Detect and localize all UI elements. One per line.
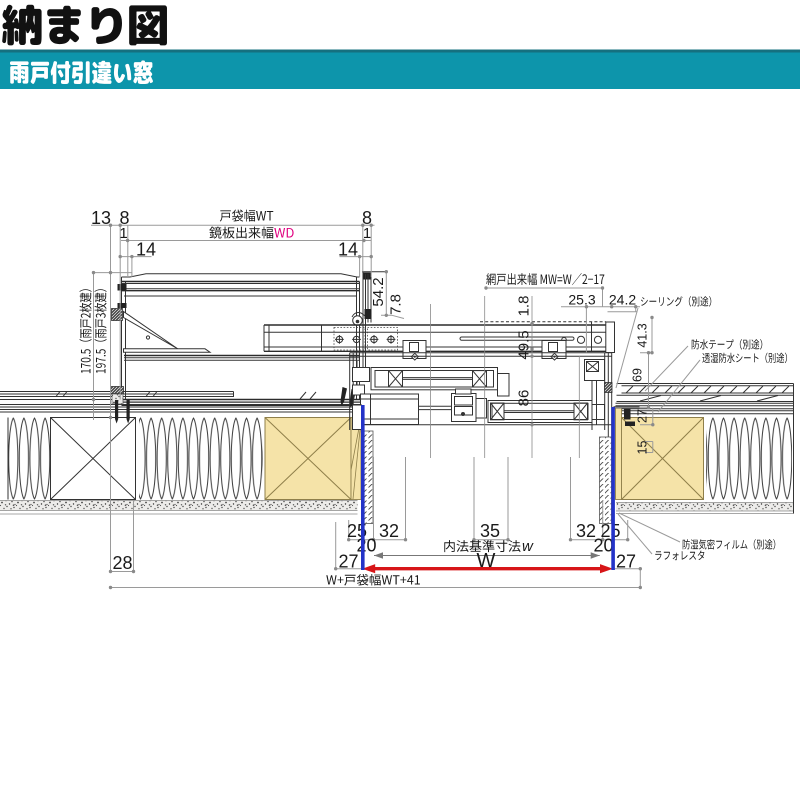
svg-text:86: 86	[516, 390, 533, 407]
svg-text:27: 27	[338, 552, 358, 572]
svg-text:1: 1	[119, 225, 127, 242]
svg-text:35: 35	[480, 521, 500, 541]
svg-text:54.2: 54.2	[370, 277, 387, 306]
svg-text:15: 15	[636, 441, 650, 455]
svg-text:20: 20	[356, 536, 376, 556]
svg-text:49.5: 49.5	[516, 330, 533, 359]
svg-text:24.2: 24.2	[609, 292, 636, 308]
svg-text:27: 27	[636, 409, 650, 423]
svg-text:7.8: 7.8	[388, 294, 405, 315]
svg-text:W: W	[477, 550, 496, 572]
svg-text:28: 28	[112, 553, 132, 573]
svg-text:41.3: 41.3	[636, 323, 650, 347]
svg-text:1.8: 1.8	[516, 296, 533, 317]
svg-text:25.3: 25.3	[568, 292, 595, 308]
svg-text:27: 27	[616, 552, 636, 572]
svg-text:20: 20	[593, 536, 613, 556]
svg-text:32: 32	[379, 521, 399, 541]
svg-text:14: 14	[136, 240, 156, 260]
svg-text:13: 13	[91, 208, 111, 228]
svg-text:w: w	[522, 538, 534, 555]
svg-text:14: 14	[338, 240, 358, 260]
svg-text:69: 69	[631, 368, 645, 382]
svg-text:1: 1	[363, 225, 371, 242]
